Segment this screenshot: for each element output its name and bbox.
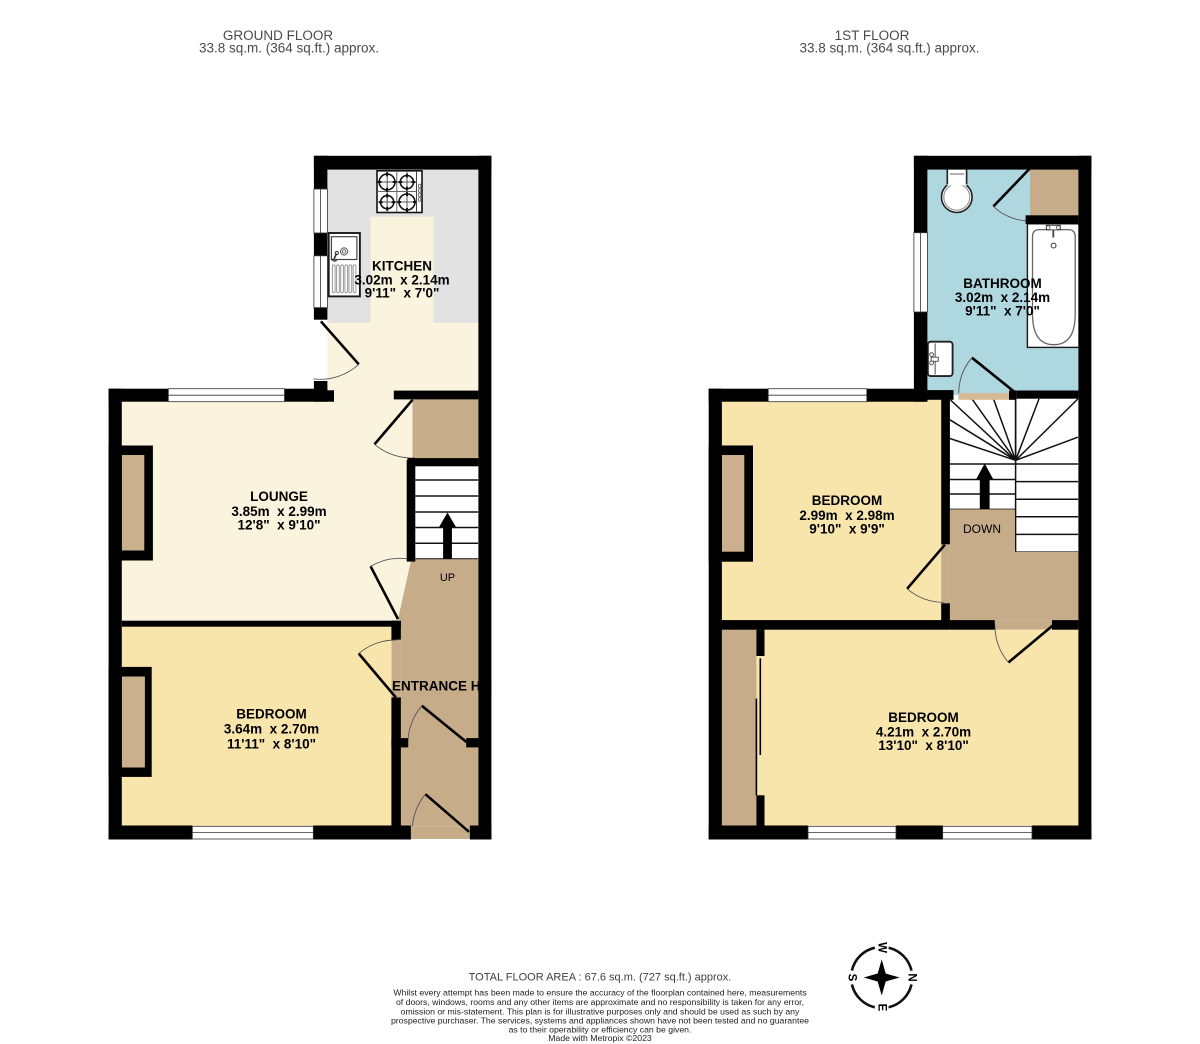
- svg-text:TOTAL FLOOR AREA : 67.6 sq.m.: TOTAL FLOOR AREA : 67.6 sq.m. (727 sq.ft…: [469, 972, 732, 984]
- svg-text:E: E: [876, 1004, 888, 1012]
- svg-text:BEDROOM: BEDROOM: [812, 493, 883, 508]
- svg-text:of doors, windows, rooms and a: of doors, windows, rooms and any other i…: [396, 997, 804, 1007]
- svg-text:W: W: [876, 942, 888, 953]
- svg-text:N: N: [906, 973, 918, 981]
- svg-text:KITCHEN: KITCHEN: [372, 259, 432, 274]
- svg-text:13'10" x 8'10": 13'10" x 8'10": [878, 738, 969, 753]
- svg-text:9'10" x 9'9": 9'10" x 9'9": [809, 522, 885, 537]
- svg-text:3.64m x 2.70m: 3.64m x 2.70m: [224, 722, 319, 737]
- svg-text:LOUNGE: LOUNGE: [250, 489, 308, 504]
- svg-text:33.8 sq.m. (364 sq.ft.) approx: 33.8 sq.m. (364 sq.ft.) approx.: [199, 41, 379, 56]
- svg-text:9'11" x 7'0": 9'11" x 7'0": [365, 286, 440, 301]
- svg-text:12'8" x 9'10": 12'8" x 9'10": [237, 518, 320, 533]
- svg-text:BATHROOM: BATHROOM: [963, 276, 1042, 291]
- svg-text:BEDROOM: BEDROOM: [888, 710, 959, 725]
- svg-text:DOWN: DOWN: [963, 522, 1001, 536]
- svg-text:33.8 sq.m. (364 sq.ft.) approx: 33.8 sq.m. (364 sq.ft.) approx.: [799, 41, 979, 56]
- svg-text:BEDROOM: BEDROOM: [236, 707, 307, 722]
- svg-text:11'11" x 8'10": 11'11" x 8'10": [227, 737, 316, 752]
- svg-text:Made with Metropix ©2023: Made with Metropix ©2023: [548, 1033, 652, 1043]
- svg-text:S: S: [846, 974, 858, 982]
- svg-text:UP: UP: [440, 572, 455, 584]
- svg-text:9'11" x 7'0": 9'11" x 7'0": [965, 304, 1040, 319]
